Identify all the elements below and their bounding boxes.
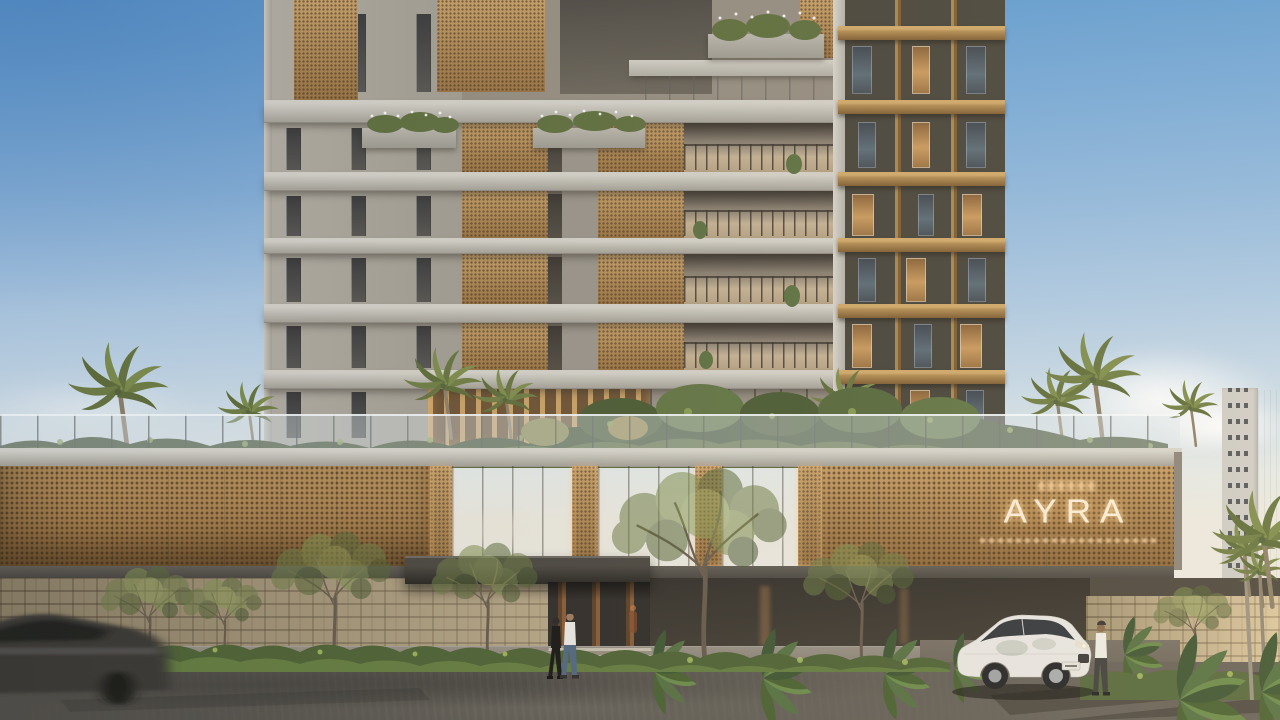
tropical-shrub: [753, 627, 813, 720]
street-tree: [803, 542, 913, 664]
tropical-shrub: [876, 627, 932, 720]
street-tree: [432, 543, 538, 660]
street-tree: [612, 468, 787, 662]
white-suv: [952, 615, 1096, 700]
street-tree: [271, 531, 391, 664]
architectural-rendering: AYRA: [0, 0, 1280, 720]
entry-interior-figure: [629, 605, 637, 633]
motion-blurred-car: [0, 614, 170, 705]
foreground-elements: [0, 0, 1280, 720]
